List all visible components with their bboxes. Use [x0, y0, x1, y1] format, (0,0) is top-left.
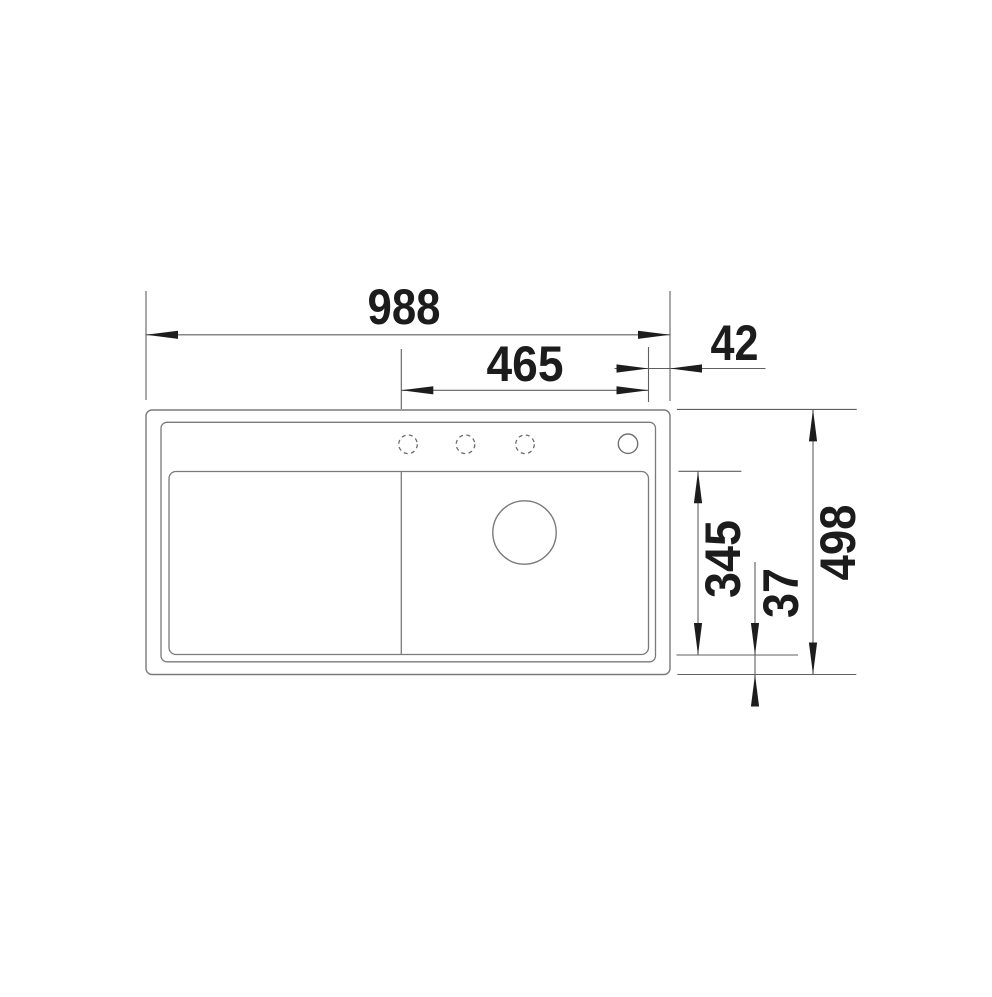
svg-text:37: 37 [753, 568, 809, 618]
svg-text:42: 42 [711, 315, 759, 371]
svg-text:498: 498 [810, 505, 866, 581]
svg-text:988: 988 [368, 279, 441, 335]
svg-text:345: 345 [695, 520, 751, 598]
svg-text:465: 465 [487, 336, 564, 392]
